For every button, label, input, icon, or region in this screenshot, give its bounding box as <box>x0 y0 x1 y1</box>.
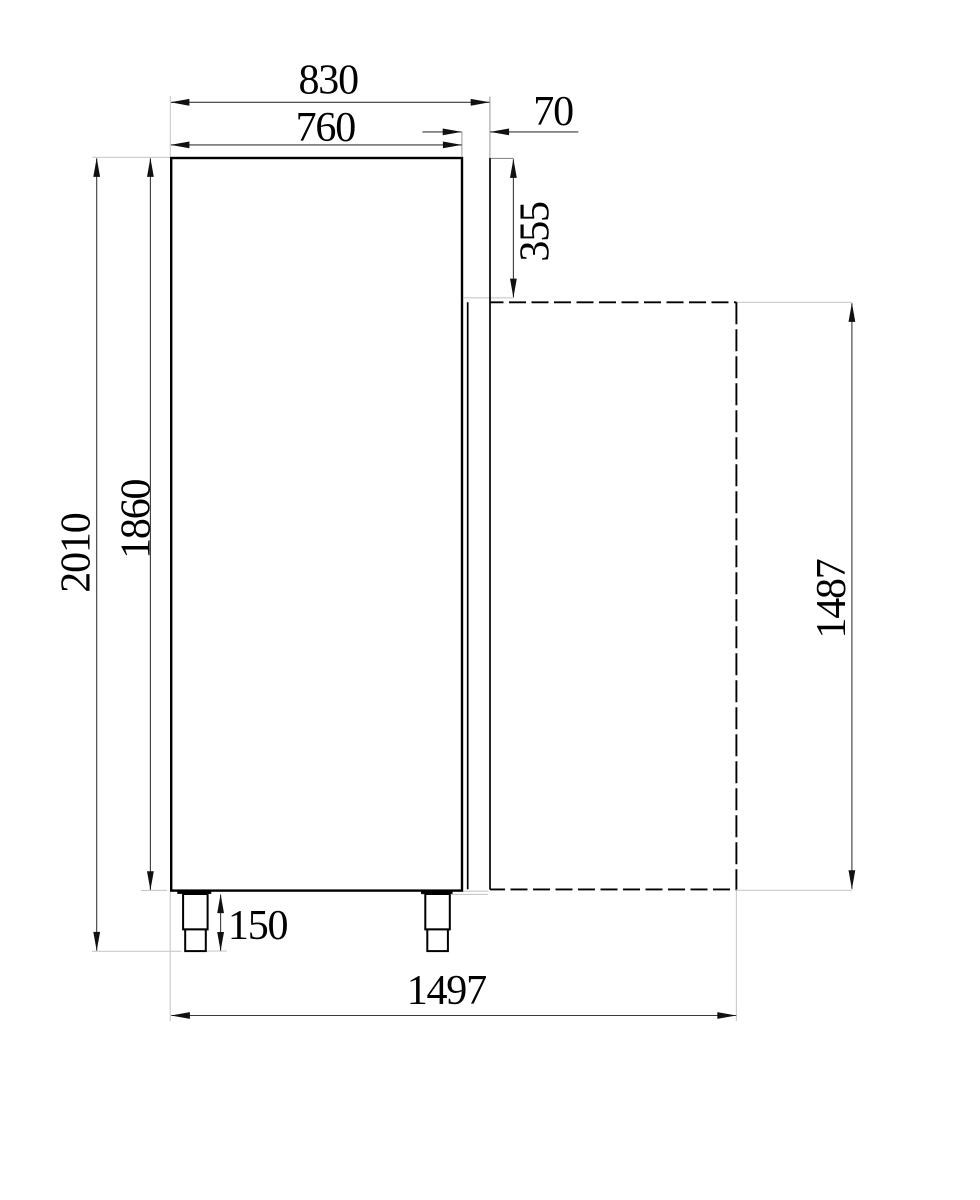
svg-text:1860: 1860 <box>113 480 159 559</box>
svg-text:355: 355 <box>513 202 559 262</box>
svg-text:1487: 1487 <box>809 559 855 638</box>
svg-text:70: 70 <box>533 89 573 135</box>
svg-text:830: 830 <box>298 58 358 104</box>
svg-text:1497: 1497 <box>407 968 486 1014</box>
svg-text:2010: 2010 <box>54 513 100 592</box>
svg-text:150: 150 <box>228 903 288 949</box>
svg-text:760: 760 <box>296 105 356 151</box>
